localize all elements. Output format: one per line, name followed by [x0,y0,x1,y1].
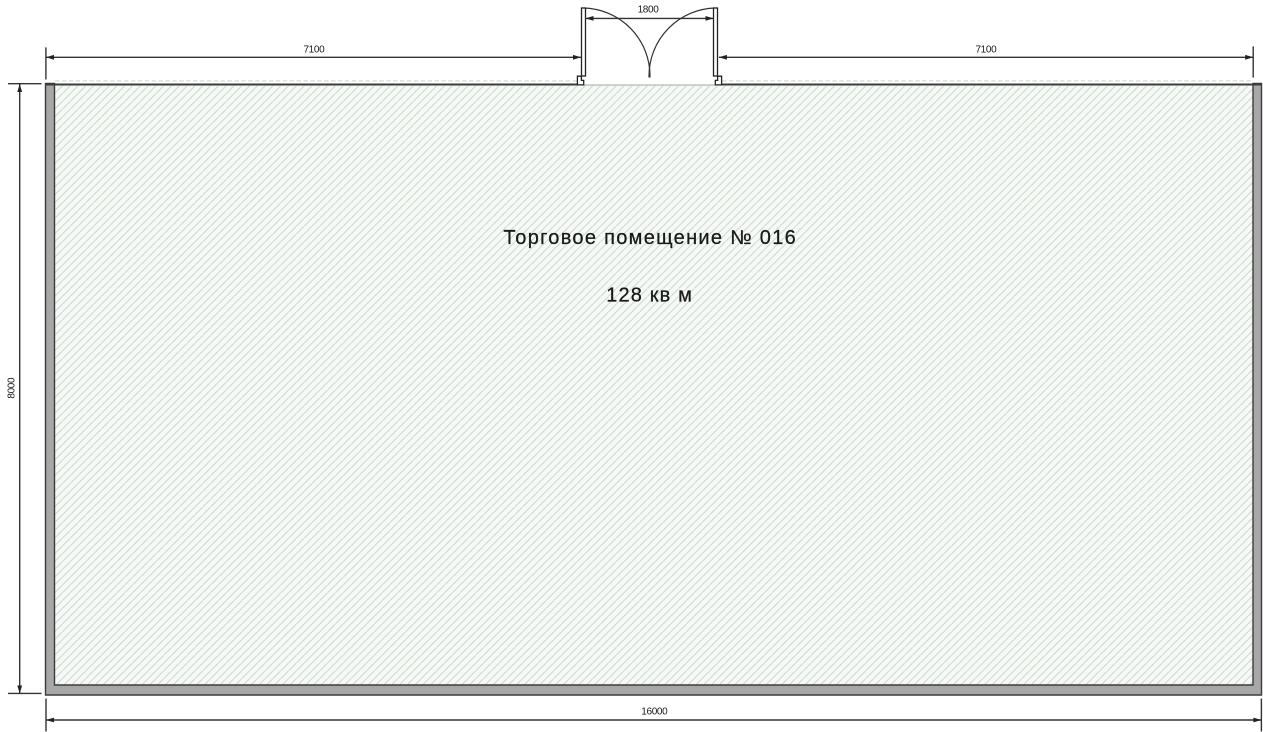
svg-text:8000: 8000 [7,377,18,399]
svg-text:Торговое помещение № 016: Торговое помещение № 016 [503,227,797,249]
svg-text:128 кв м: 128 кв м [606,284,693,306]
svg-text:16000: 16000 [641,707,668,718]
svg-text:1800: 1800 [638,5,660,16]
svg-text:7100: 7100 [303,44,325,55]
svg-text:7100: 7100 [975,44,997,55]
